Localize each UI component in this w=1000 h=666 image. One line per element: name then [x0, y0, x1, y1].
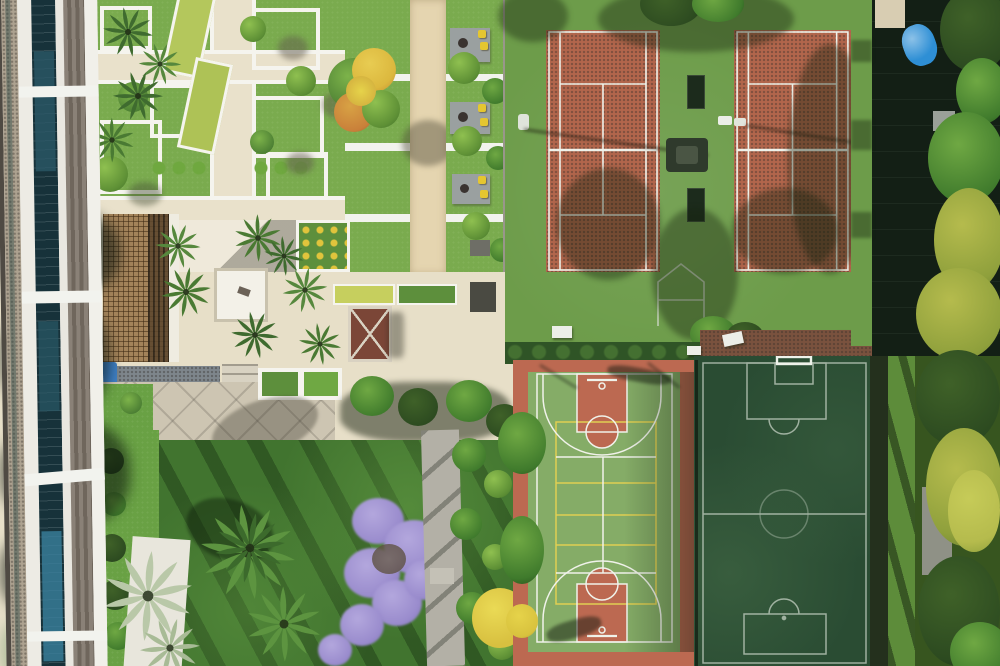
tree-canopy — [450, 508, 482, 540]
canopy-shadow — [556, 168, 660, 280]
tree-canopy — [500, 516, 544, 584]
hedge-yellow — [333, 284, 395, 305]
tree-canopy — [446, 380, 492, 422]
bush — [120, 392, 142, 414]
shed-roof — [875, 0, 905, 28]
tree-canopy — [452, 126, 482, 156]
court-shade-gradient — [624, 372, 697, 652]
facade-crossbar — [22, 290, 102, 303]
futsal-lines — [694, 356, 872, 666]
tree-canopy — [286, 66, 316, 96]
planter-wall — [345, 143, 410, 151]
courtside-bench — [552, 326, 572, 338]
aerial-photo-scene — [0, 0, 1000, 666]
glass-reflection — [34, 51, 56, 171]
palm-tree — [128, 32, 130, 34]
glass-reflection — [38, 321, 59, 411]
canopy-shadow — [732, 188, 838, 274]
tree-canopy — [916, 268, 1000, 360]
palm-tree — [250, 548, 252, 550]
deck-table — [460, 184, 469, 193]
palm-tree — [284, 624, 286, 626]
glass-reflection — [41, 531, 63, 661]
fence-shadow — [851, 40, 872, 62]
tree-canopy — [948, 470, 1000, 552]
tree-canopy — [240, 16, 266, 42]
jacaranda-small — [318, 634, 352, 666]
palm-tree — [320, 344, 322, 346]
parterre-grass — [345, 0, 410, 272]
palm-tree — [112, 140, 114, 142]
terrace-planter — [300, 368, 342, 400]
yellow-bush — [506, 604, 538, 638]
palm-tree — [258, 238, 260, 240]
hedge-green — [397, 284, 457, 305]
tree-shadow — [286, 152, 314, 174]
lounge-chair — [480, 118, 488, 126]
facade-crossbar — [27, 630, 107, 641]
tree-canopy — [484, 470, 512, 498]
fence-strip — [870, 356, 890, 666]
pavilion-shadow — [388, 312, 404, 358]
tree-canopy — [462, 212, 490, 240]
palm-tree — [305, 290, 307, 292]
palm-tree — [284, 256, 286, 258]
deck-table — [458, 112, 468, 122]
court-divider-fence — [695, 360, 698, 666]
facade-crossbar — [18, 85, 98, 97]
tree-canopy — [250, 130, 274, 154]
palm-tree — [160, 64, 162, 66]
lounge-chair — [480, 190, 488, 198]
lounge-chair — [478, 30, 486, 38]
palm-tree — [186, 292, 188, 294]
deck-table — [458, 38, 468, 48]
terrace-planter — [258, 368, 302, 400]
sand-square-feature — [214, 268, 268, 322]
lounge-chair — [480, 42, 488, 50]
pavilion-roof — [348, 306, 392, 362]
tree-canopy — [398, 388, 438, 426]
tree-shadow — [278, 36, 308, 60]
palm-tree — [255, 335, 257, 337]
topiary-row — [150, 160, 206, 176]
palm-tree — [178, 246, 180, 248]
tree-shadow — [128, 182, 162, 206]
palm-tree — [138, 96, 140, 98]
path-bench — [687, 346, 701, 355]
building-facade — [0, 0, 108, 666]
lounge-chair — [478, 104, 486, 112]
silver-palm-tree — [170, 648, 172, 650]
fence-shadow — [851, 212, 872, 238]
lounge-chair — [478, 176, 486, 184]
equipment-crate — [470, 282, 496, 312]
path-bench — [430, 568, 454, 584]
gravel-rill — [110, 366, 220, 382]
flower-bed-yellow — [296, 220, 350, 272]
planter-wall — [345, 214, 410, 222]
floodlight-head — [718, 116, 732, 125]
tree-canopy — [498, 412, 546, 474]
equipment-crate — [470, 240, 490, 256]
tree-canopy — [448, 52, 480, 84]
fence-shadow — [851, 120, 872, 150]
tree-canopy — [350, 376, 394, 416]
tree-canopy — [452, 438, 486, 472]
silver-palm-tree — [148, 596, 150, 598]
floodlight-head — [734, 118, 746, 126]
